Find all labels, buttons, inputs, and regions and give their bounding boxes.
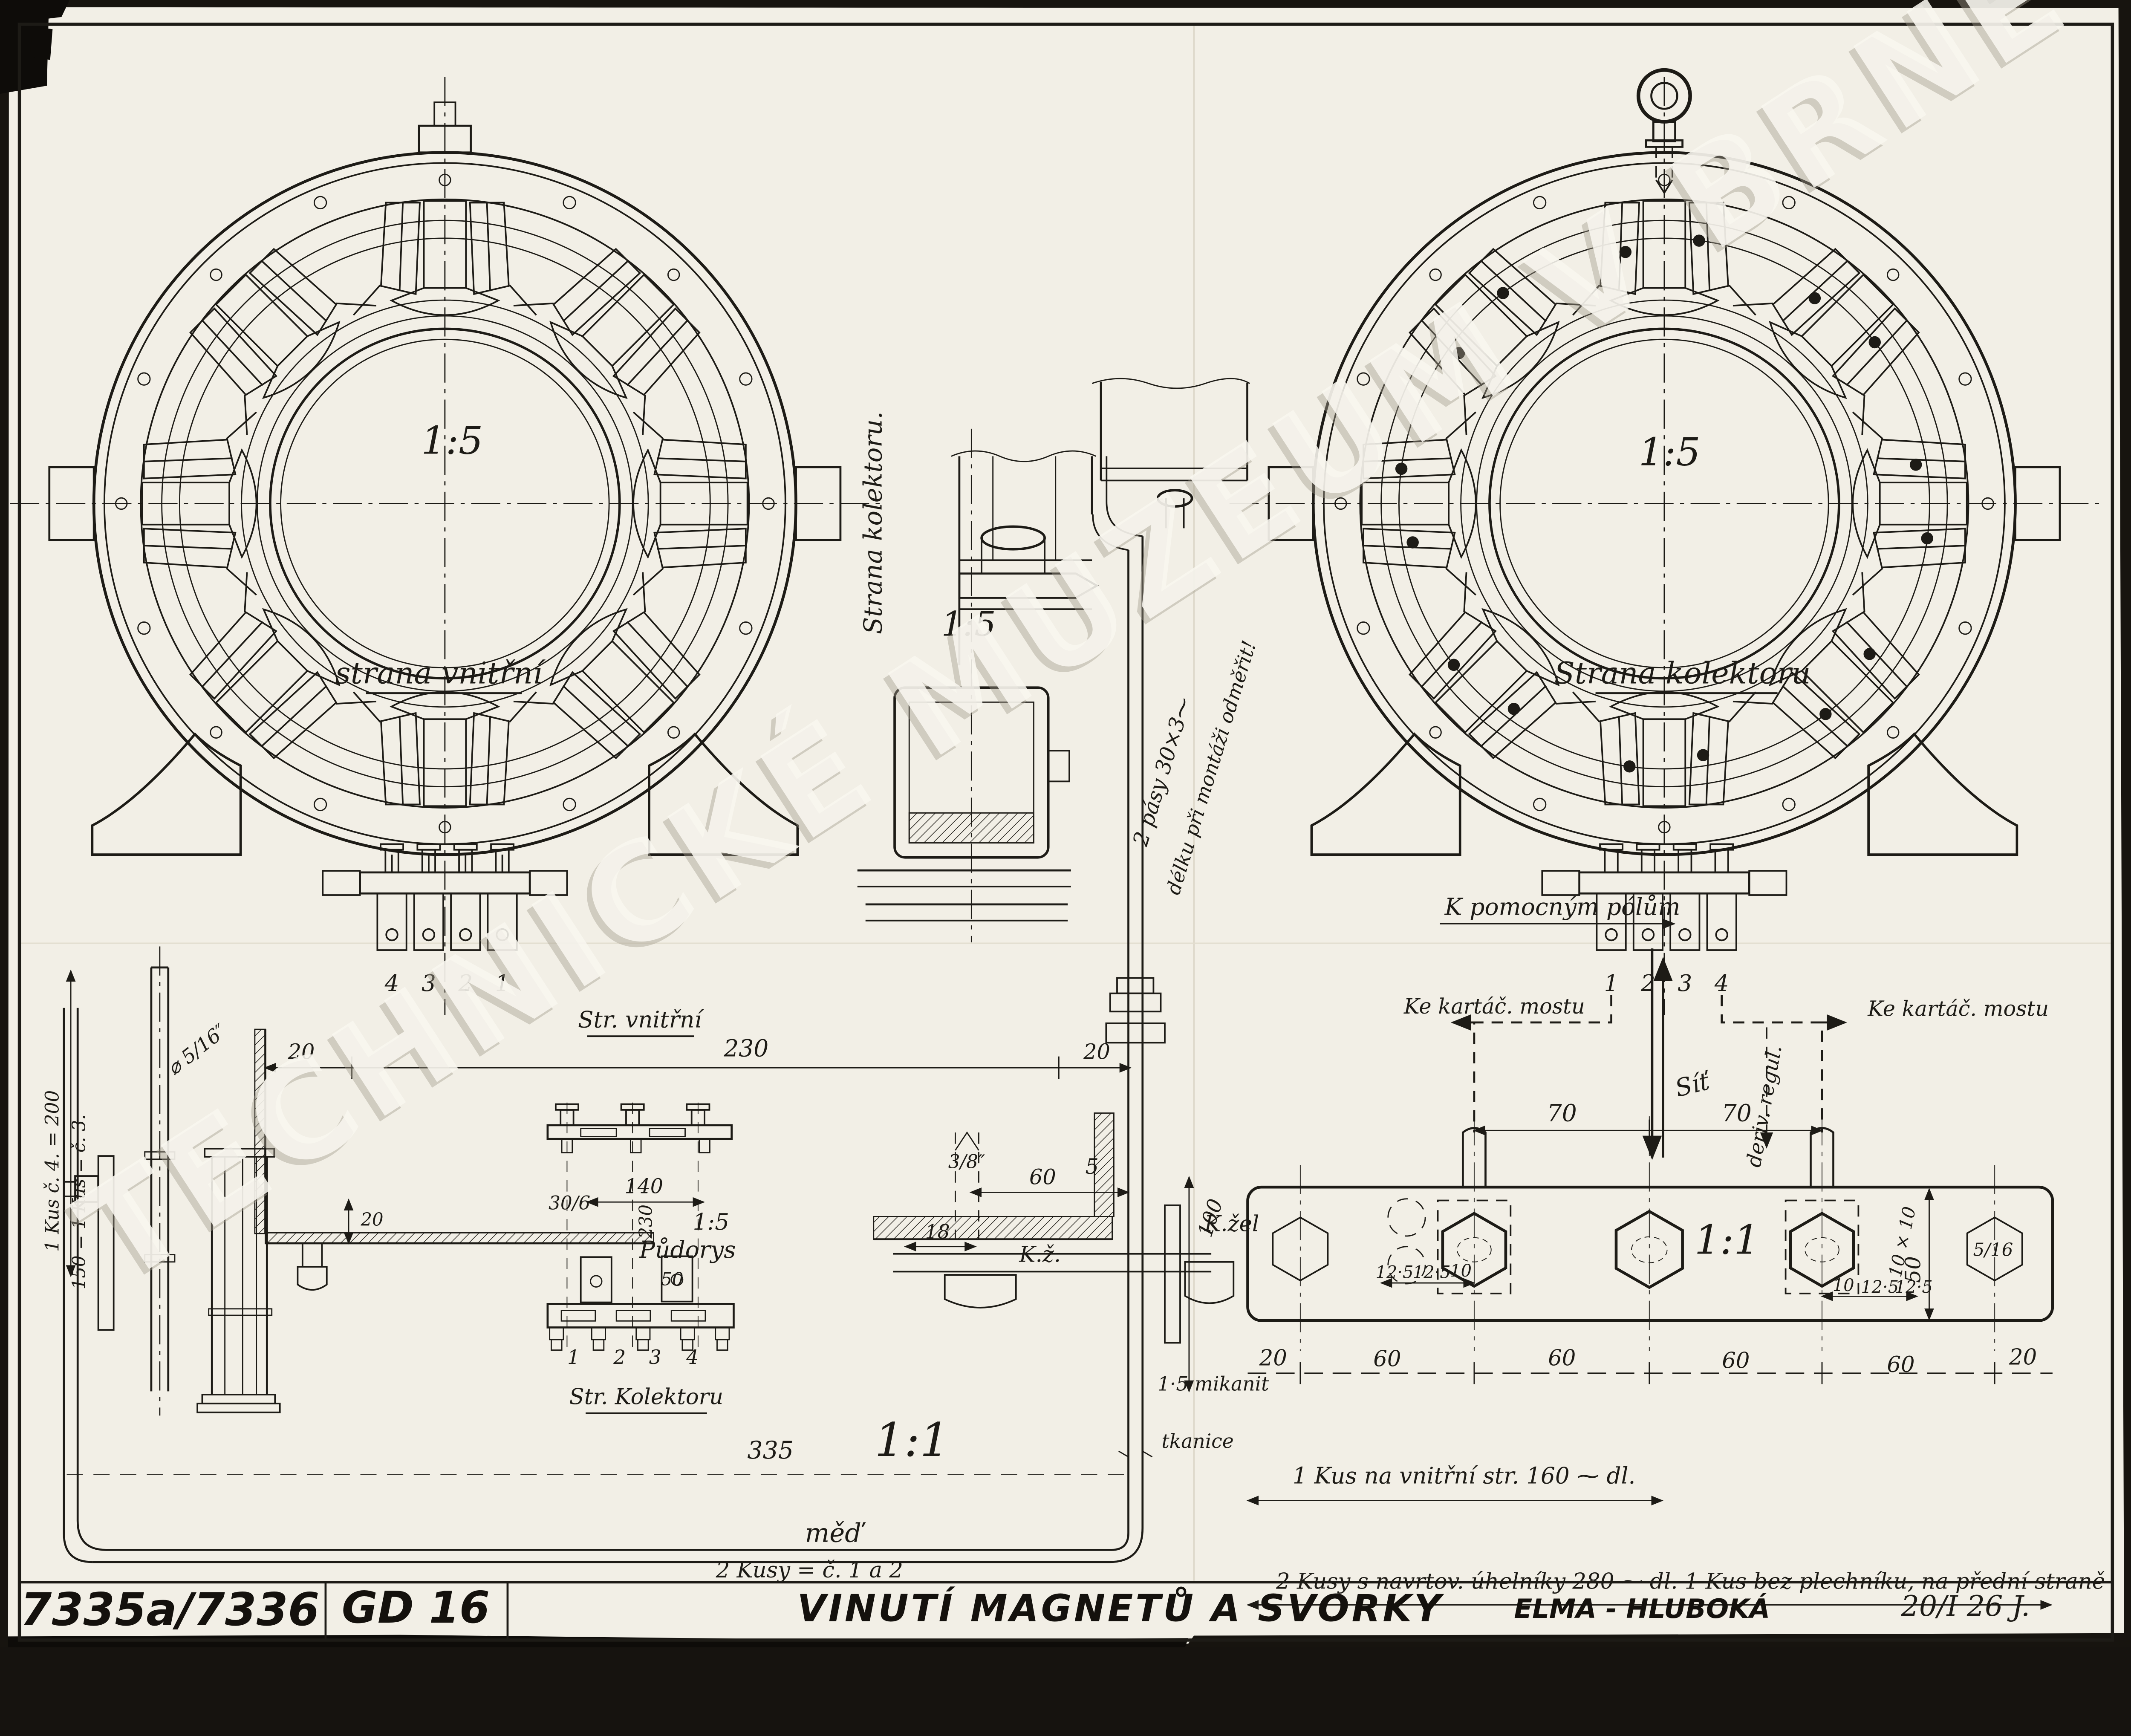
- dim-20: 20: [2009, 1345, 2037, 1370]
- dim-60: 60: [1029, 1165, 1056, 1190]
- strip-scale: 1:1: [1695, 1217, 1760, 1264]
- dim-230-vertical: 230: [635, 1205, 656, 1239]
- dim-20: 20: [360, 1209, 383, 1230]
- plan-bottom-caption: Str. Kolektoru: [569, 1384, 724, 1410]
- plan-caption: Půdorys: [639, 1236, 736, 1263]
- dim-335: 335: [747, 1436, 794, 1464]
- technical-drawing-canvas: 1:5 strana vnitřní 4 3 2 1 1:5 Strana ko…: [0, 0, 2131, 1647]
- terminal-number: 4: [1714, 970, 1729, 997]
- dim-5-16: 5/16: [1973, 1239, 2013, 1260]
- dim-60: 60: [1548, 1346, 1576, 1371]
- pieces-1-2-note: 2 Kusy = č. 1 a 2: [716, 1557, 903, 1583]
- drawing-number: 7335a/7336: [20, 1583, 320, 1636]
- piece4-note: 1 Kus č. 4. = 200: [42, 1090, 64, 1252]
- detail-scale: 1:1: [875, 1413, 950, 1467]
- dim-18: 18: [925, 1221, 950, 1243]
- dim-70: 70: [1547, 1099, 1577, 1127]
- tape-note: tkanice: [1161, 1430, 1233, 1453]
- dim-20: 20: [1259, 1346, 1287, 1371]
- dim-30-6: 30/6: [549, 1192, 590, 1214]
- dim-10: 10: [1450, 1261, 1472, 1281]
- dim-70: 70: [1722, 1099, 1752, 1127]
- dim-12-5: 12·5: [1376, 1263, 1414, 1283]
- brush-bridge-left: Ke kartáč. mostu: [1403, 994, 1585, 1019]
- dim-12-5: 12·5: [1413, 1263, 1451, 1283]
- terminal-number: 1: [1604, 970, 1619, 997]
- inner-piece-note: 1 Kus na vnitřní str. 160 ⁓ dl.: [1293, 1463, 1636, 1489]
- terminal-number: 4: [686, 1346, 699, 1369]
- terminal-number: 3: [1678, 970, 1692, 997]
- drawing-date: 20/I 26 J.: [1901, 1589, 2030, 1623]
- plan-scale: 1:5: [693, 1209, 730, 1235]
- dim-12-5: 12·5: [1861, 1277, 1899, 1297]
- terminal-number: 1: [567, 1346, 580, 1369]
- right-view-scale: 1:5: [1639, 430, 1701, 474]
- section-caption: Strana kolektoru.: [858, 411, 888, 634]
- dim-10: 10: [1833, 1276, 1854, 1295]
- dim-60: 60: [1722, 1348, 1750, 1373]
- left-view-caption: strana vnitřní: [335, 656, 546, 691]
- right-view-caption: Strana kolektoru: [1554, 656, 1811, 691]
- dim-230: 230: [723, 1035, 768, 1062]
- dim-60: 60: [1887, 1352, 1914, 1378]
- left-view-scale: 1:5: [421, 419, 483, 463]
- dim-50: 50: [661, 1269, 684, 1290]
- scanned-drawing-page: 1:5 strana vnitřní 4 3 2 1 1:5 Strana ko…: [0, 0, 2131, 1647]
- dim-60: 60: [1373, 1346, 1401, 1372]
- company-name: ELMA - HLUBOKÁ: [1514, 1593, 1770, 1624]
- kz-label: K.ž.: [1019, 1242, 1061, 1268]
- dim-5: 5: [1085, 1154, 1098, 1179]
- scan-artifact: [30, 27, 52, 60]
- dim-20: 20: [1083, 1039, 1110, 1064]
- copper-label: měď: [805, 1518, 866, 1548]
- terminal-number: 3: [649, 1346, 661, 1369]
- type-code: GD 16: [342, 1583, 490, 1633]
- aux-poles-note: K pomocným pólům: [1444, 893, 1681, 921]
- dim-140: 140: [624, 1175, 663, 1198]
- mica-note: 1·5 mikanit: [1158, 1372, 1269, 1395]
- drawing-title: VINUTÍ MAGNETŮ A SVORKY: [797, 1586, 1444, 1630]
- dim-3-8: 3/8″: [948, 1151, 985, 1173]
- brush-bridge-right: Ke kartáč. mostu: [1867, 997, 2049, 1021]
- terminal-number: 2: [613, 1346, 626, 1369]
